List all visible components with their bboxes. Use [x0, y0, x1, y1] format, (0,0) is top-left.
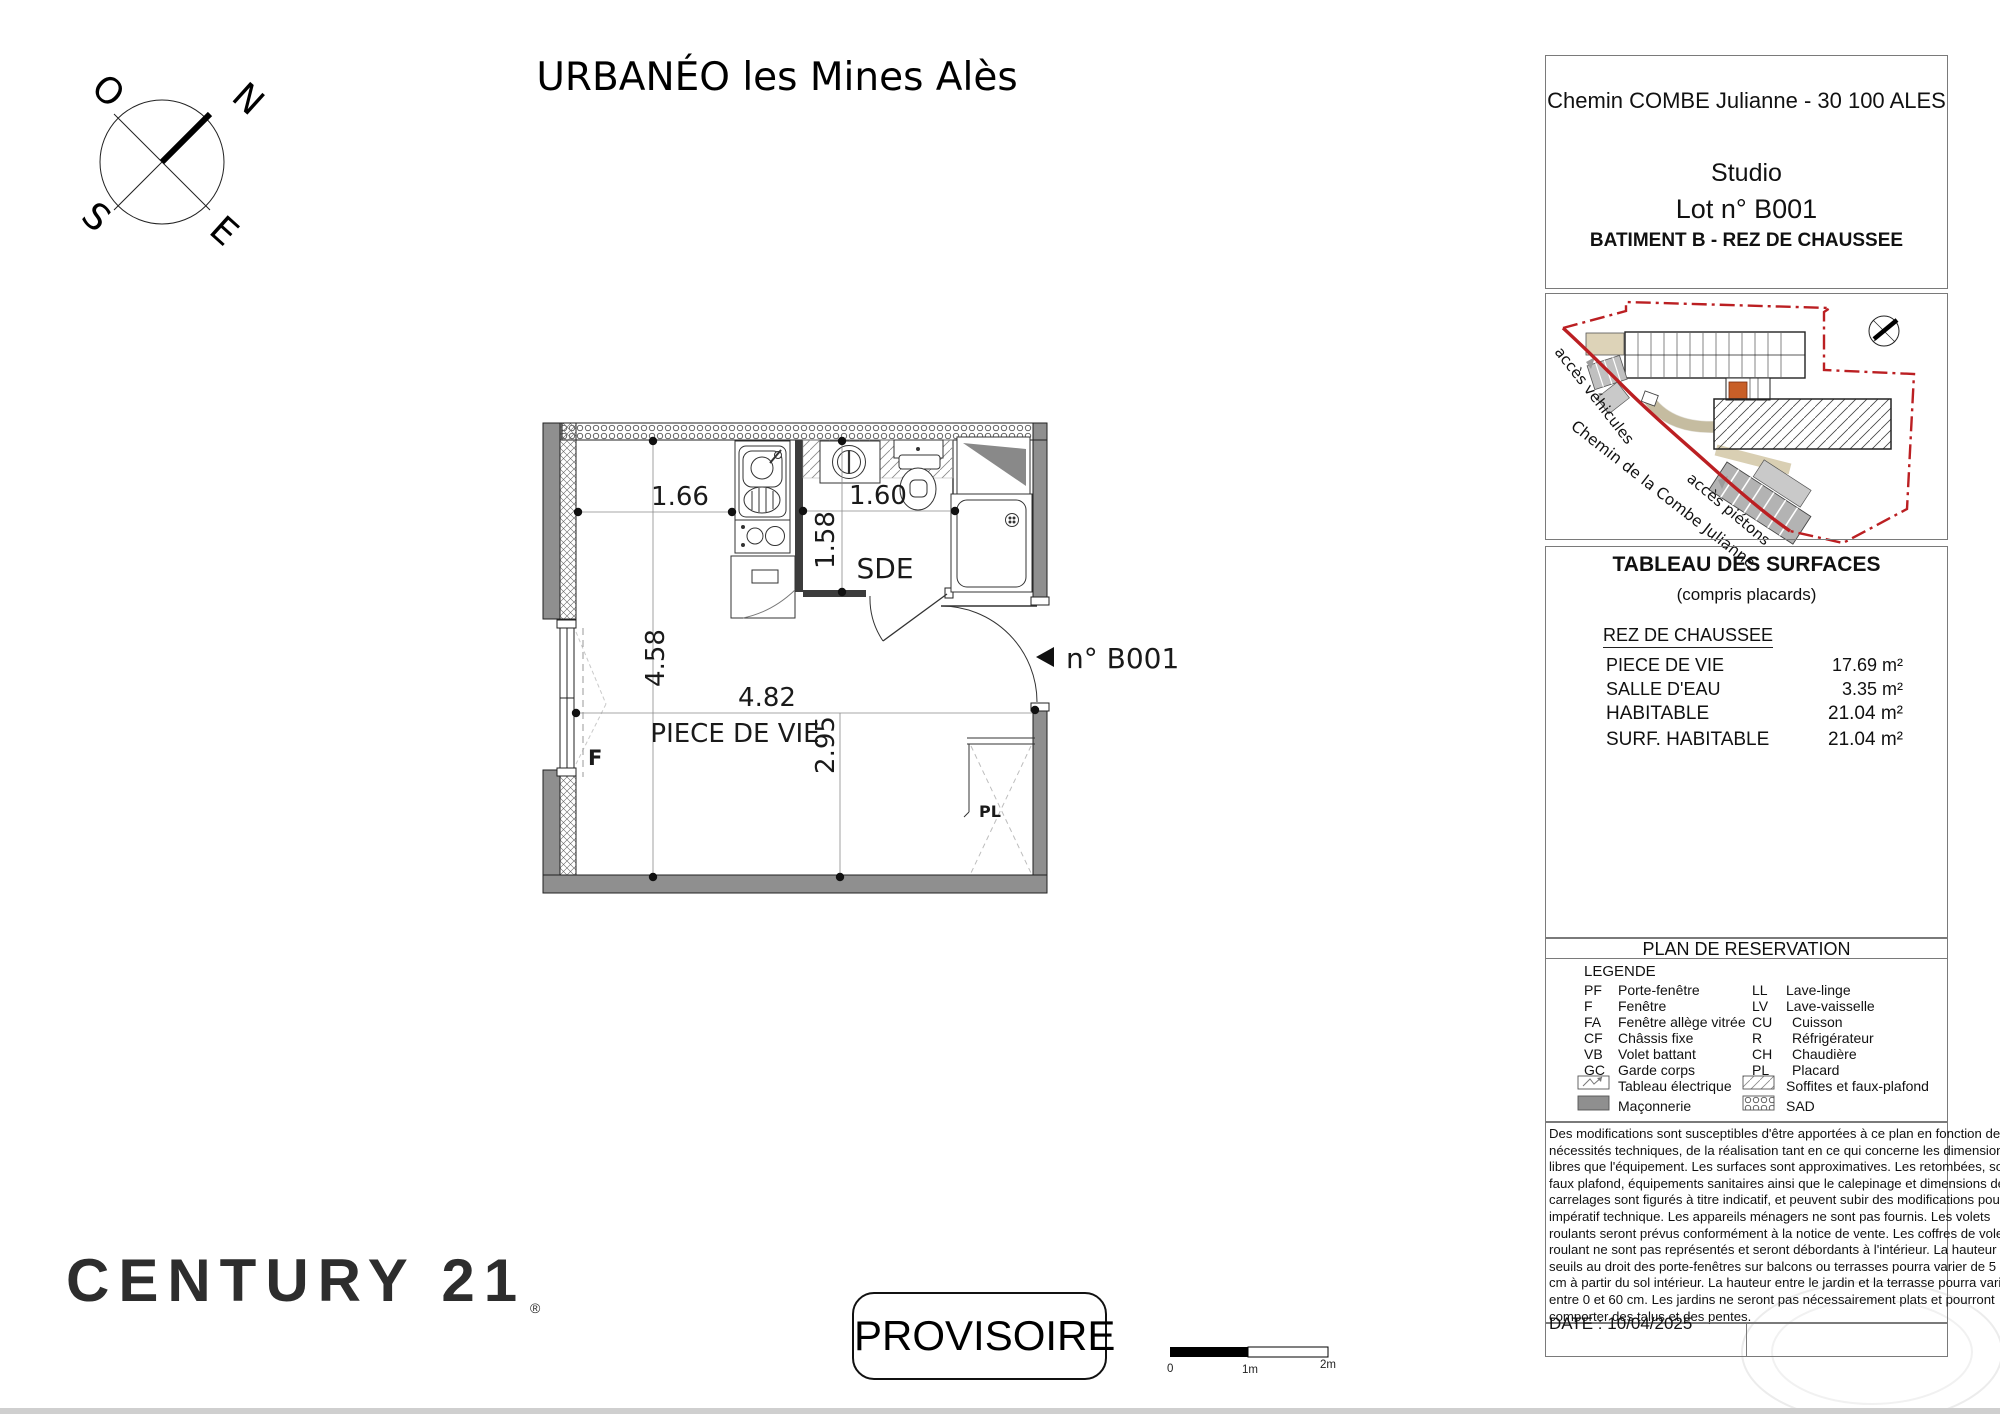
shower-drain	[1006, 514, 1019, 527]
legend-entry: LL Lave-linge	[1752, 982, 1922, 998]
compass-o: O	[83, 67, 131, 116]
legend-label: Porte-fenêtre	[1618, 982, 1700, 998]
legend-code: F	[1584, 998, 1593, 1014]
sde-door	[870, 594, 947, 641]
legend-code: CH	[1752, 1046, 1772, 1062]
legend-entry: CH Chaudière	[1752, 1046, 1922, 1062]
registered-mark: ®	[530, 1300, 540, 1316]
surface-value: 21.04 m²	[1828, 729, 1903, 751]
floor-plan-document: { "page": { "title": "URBANÉO les Mines …	[0, 0, 2000, 1414]
unit-arrow-icon	[1036, 647, 1054, 667]
surfaces-title: TABLEAU DES SURFACES	[1546, 553, 1947, 577]
legend-code: FA	[1584, 1014, 1601, 1030]
building-floor: BATIMENT B - REZ DE CHAUSSEE	[1546, 230, 1947, 252]
legend-label: Cuisson	[1792, 1014, 1843, 1030]
scale-bar: 0 1m 2m	[1167, 1347, 1336, 1376]
surface-label: HABITABLE	[1606, 703, 1709, 725]
legend-entry: CU Cuisson	[1752, 1014, 1922, 1030]
surface-row: HABITABLE 21.04 m²	[1546, 703, 1947, 723]
kitchen-unit	[735, 441, 790, 553]
room-label-piece-de-vie: PIECE DE VIE	[650, 719, 819, 749]
bathroom-fixtures	[820, 437, 1032, 592]
compass-s: S	[73, 195, 117, 241]
century21-logo: CENTURY 21	[66, 1246, 526, 1315]
scale-0: 0	[1167, 1363, 1173, 1375]
legend-label: Soffites et faux-plafond	[1786, 1078, 1929, 1094]
site-plan-box	[1545, 293, 1948, 540]
disclaimer-line: carrelages sont figurés à titre indicati…	[1549, 1192, 2000, 1209]
surfaces-floor-heading: REZ DE CHAUSSEE	[1603, 625, 1773, 648]
kitchen-drainer	[744, 487, 780, 513]
dim-bath-width: 1.60	[849, 481, 907, 511]
legend-entry: Maçonnerie	[1618, 1098, 1788, 1114]
surface-label: SURF. HABITABLE	[1606, 729, 1769, 751]
legend-entry: SAD	[1786, 1098, 1956, 1114]
closet-label-pl: PL	[979, 802, 1001, 821]
date-cell-divider	[1746, 1323, 1747, 1356]
room-label-sde: SDE	[856, 552, 913, 585]
date-row-box: DATE : 10/04/2025	[1545, 1322, 1948, 1357]
legend-entry: Soffites et faux-plafond	[1786, 1078, 1956, 1094]
legend-entry: CF Châssis fixe	[1584, 1030, 1744, 1046]
surface-value: 3.35 m²	[1842, 679, 1903, 700]
disclaimer-text: Des modifications sont susceptibles d'êt…	[1549, 1126, 2000, 1325]
compass-rose	[100, 100, 224, 224]
legend-code: LV	[1752, 998, 1768, 1014]
disclaimer-line: roulants seront prévus conformément à la…	[1549, 1226, 2000, 1243]
compass-n: N	[224, 75, 271, 123]
dim-living-depth: 4.58	[641, 629, 671, 687]
legend-entry: F Fenêtre	[1584, 998, 1744, 1014]
surface-row: PIECE DE VIE 17.69 m²	[1546, 655, 1947, 675]
legend-code: CU	[1752, 1014, 1772, 1030]
disclaimer-line: seuils au droit des porte-fenêtres sur b…	[1549, 1259, 2000, 1276]
surface-value: 21.04 m²	[1828, 703, 1903, 725]
legend-entry: Tableau électrique	[1618, 1078, 1788, 1094]
wall-right-lower	[1033, 711, 1047, 893]
surface-row: SALLE D'EAU 3.35 m²	[1546, 679, 1947, 699]
disclaimer-line: roulant ne sont pas représentés et seron…	[1549, 1242, 2000, 1259]
unit-type: Studio	[1546, 159, 1947, 188]
legend-entry: VB Volet battant	[1584, 1046, 1744, 1062]
legend-code: VB	[1584, 1046, 1603, 1062]
surface-label: PIECE DE VIE	[1606, 655, 1724, 676]
legend-label: Placard	[1792, 1062, 1839, 1078]
disclaimer-line: faux plafond, équipements sanitaires ain…	[1549, 1176, 2000, 1193]
provisoire-stamp: PROVISOIRE	[852, 1292, 1107, 1380]
disclaimer-line: nécessités techniques, de la réalisation…	[1549, 1143, 2000, 1160]
legend-label: Lave-vaisselle	[1786, 998, 1875, 1014]
compass-letters: O N S E	[73, 67, 271, 255]
dim-bath-depth: 1.58	[811, 511, 841, 569]
legend-code: R	[1752, 1030, 1762, 1046]
legend-title: LEGENDE	[1584, 963, 1656, 980]
legend-entry: LV Lave-vaisselle	[1752, 998, 1922, 1014]
hob-burner-2	[766, 527, 785, 546]
legend-label: SAD	[1786, 1098, 1815, 1114]
legend-label: Chaudière	[1792, 1046, 1857, 1062]
wall-bottom	[543, 875, 1047, 893]
unit-number-label: n° B001	[1066, 642, 1179, 675]
legend-label: Maçonnerie	[1618, 1098, 1691, 1114]
page-title: URBANÉO les Mines Alès	[417, 55, 1137, 100]
legend-entry: FA Fenêtre allège vitrée	[1584, 1014, 1754, 1030]
panel-header-box: Chemin COMBE Julianne - 30 100 ALES Stud…	[1545, 55, 1948, 289]
legend-label: Châssis fixe	[1618, 1030, 1693, 1046]
dim-living-width: 4.82	[738, 683, 796, 713]
scale-2m: 2m	[1320, 1359, 1336, 1371]
legend-entry: R Réfrigérateur	[1752, 1030, 1922, 1046]
legend-label: Fenêtre allège vitrée	[1618, 1014, 1746, 1030]
fridge-handle	[752, 570, 778, 583]
legend-label: Lave-linge	[1786, 982, 1851, 998]
window-label-f: F	[588, 746, 602, 770]
page-bottom-strip	[0, 1408, 2000, 1414]
legend-label: Fenêtre	[1618, 998, 1666, 1014]
legend-entry: GC Garde corps	[1584, 1062, 1744, 1078]
floor-plan: 1.66 1.60 4.58 1.58 4.82 2.95 SDE PIECE …	[543, 423, 1179, 893]
surface-row: SURF. HABITABLE 21.04 m²	[1546, 729, 1947, 749]
window-swing-dashes	[576, 632, 606, 764]
partition-sde-bottom	[803, 590, 866, 597]
legend-label: Réfrigérateur	[1792, 1030, 1874, 1046]
legend-label: Volet battant	[1618, 1046, 1696, 1062]
reservation-title: PLAN DE RESERVATION	[1546, 939, 1947, 959]
surface-label: SALLE D'EAU	[1606, 679, 1721, 700]
legend-code: CF	[1584, 1030, 1603, 1046]
legend-entry: PF Porte-fenêtre	[1584, 982, 1744, 998]
legend-label: Tableau électrique	[1618, 1078, 1732, 1094]
toilet-tank	[899, 455, 940, 469]
window-f	[560, 628, 574, 768]
lot-number: Lot n° B001	[1546, 194, 1947, 225]
surfaces-subtitle: (compris placards)	[1546, 585, 1947, 605]
fridge-unit	[731, 556, 795, 618]
surface-value: 17.69 m²	[1832, 655, 1903, 676]
dim-kitchen-width: 1.66	[651, 482, 709, 512]
entrance-door	[941, 606, 1037, 702]
plan-labels: 1.66 1.60 4.58 1.58 4.82 2.95 SDE PIECE …	[588, 481, 1179, 821]
address: Chemin COMBE Julianne - 30 100 ALES	[1546, 88, 1947, 114]
legend-code: GC	[1584, 1062, 1605, 1078]
surfaces-box: TABLEAU DES SURFACES (compris placards) …	[1545, 546, 1948, 938]
disclaimer-line: libres que l'équipement. Les surfaces so…	[1549, 1159, 2000, 1176]
hob-burner-1	[747, 528, 763, 544]
wall-right-upper	[1033, 440, 1047, 597]
legend-label: Garde corps	[1618, 1062, 1695, 1078]
legend-code: LL	[1752, 982, 1768, 998]
partition-sde-left	[795, 440, 803, 592]
legend-code: PL	[1752, 1062, 1769, 1078]
wall-left-upper	[543, 423, 560, 619]
disclaimer-line: entre 0 et 60 cm. Les jardins ne seront …	[1549, 1292, 2000, 1309]
disclaimer-line: Des modifications sont susceptibles d'êt…	[1549, 1126, 2000, 1143]
disclaimer-line: cm à partir du sol intérieur. La hauteur…	[1549, 1275, 2000, 1292]
legend-code: PF	[1584, 982, 1602, 998]
disclaimer-box: Des modifications sont susceptibles d'êt…	[1545, 1121, 1948, 1324]
compass-e: E	[202, 209, 246, 255]
disclaimer-line: impératif technique. Les appareils ménag…	[1549, 1209, 2000, 1226]
reservation-box: PLAN DE RESERVATION LEGENDE PF Porte-fen…	[1545, 938, 1948, 1123]
legend-entry: PL Placard	[1752, 1062, 1922, 1078]
date-label: DATE : 10/04/2025	[1549, 1314, 1692, 1334]
scale-1m: 1m	[1242, 1364, 1258, 1376]
